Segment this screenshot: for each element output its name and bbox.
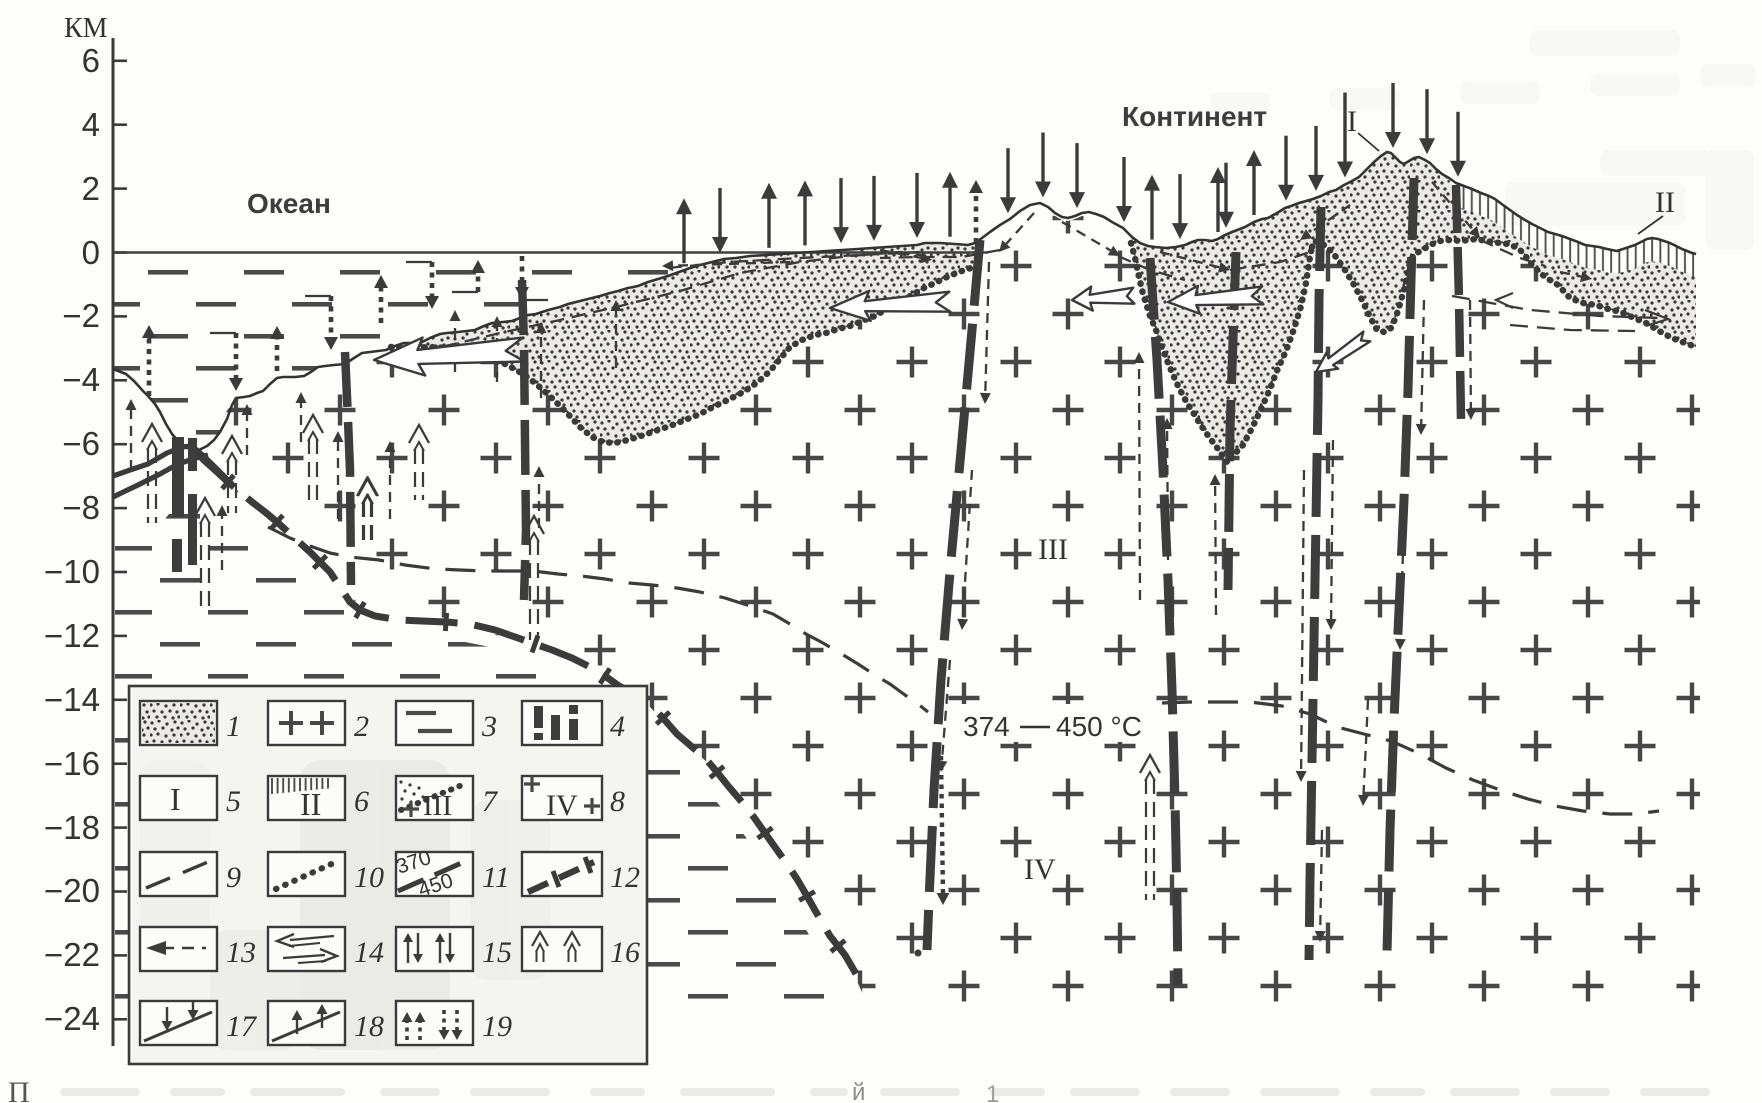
svg-text:8: 8: [610, 785, 625, 818]
svg-text:−8: −8: [62, 489, 100, 526]
svg-text:1: 1: [226, 710, 241, 743]
svg-text:й: й: [852, 1079, 865, 1103]
svg-text:12: 12: [610, 861, 640, 894]
svg-text:Континент: Континент: [1122, 101, 1267, 132]
svg-text:6: 6: [354, 785, 369, 818]
svg-text:5: 5: [226, 785, 241, 818]
svg-text:16: 16: [610, 936, 640, 969]
svg-text:9: 9: [226, 861, 241, 894]
svg-text:15: 15: [482, 936, 512, 969]
svg-text:19: 19: [482, 1010, 512, 1043]
svg-text:14: 14: [354, 936, 384, 969]
svg-text:17: 17: [226, 1010, 258, 1043]
svg-text:374: 374: [963, 711, 1010, 742]
svg-text:10: 10: [354, 861, 384, 894]
svg-text:0: 0: [82, 234, 100, 271]
svg-text:−22: −22: [44, 936, 100, 973]
svg-text:1: 1: [986, 1081, 999, 1103]
svg-text:3: 3: [481, 710, 497, 743]
svg-text:−2: −2: [62, 297, 100, 334]
svg-text:6: 6: [82, 42, 100, 79]
svg-text:−14: −14: [44, 681, 100, 718]
svg-text:18: 18: [354, 1010, 384, 1043]
svg-text:2: 2: [82, 170, 100, 207]
svg-text:11: 11: [482, 861, 510, 894]
svg-text:7: 7: [482, 785, 499, 818]
svg-text:−6: −6: [62, 425, 100, 462]
svg-text:IV: IV: [546, 789, 578, 822]
svg-text:П: П: [8, 1076, 30, 1103]
svg-text:−18: −18: [44, 809, 100, 846]
svg-text:I: I: [170, 781, 181, 817]
svg-text:450 °C: 450 °C: [1056, 711, 1142, 742]
svg-text:−20: −20: [44, 872, 100, 909]
svg-text:−12: −12: [44, 617, 100, 654]
svg-text:−24: −24: [44, 1000, 100, 1037]
svg-text:I: I: [1347, 105, 1357, 138]
svg-text:II: II: [300, 786, 321, 822]
svg-text:4: 4: [610, 710, 625, 743]
svg-text:III: III: [1038, 533, 1068, 566]
svg-text:4: 4: [82, 106, 100, 143]
svg-text:III: III: [423, 790, 452, 822]
svg-text:13: 13: [226, 936, 256, 969]
svg-text:−16: −16: [44, 745, 100, 782]
svg-text:−10: −10: [44, 553, 100, 590]
svg-text:−4: −4: [62, 361, 100, 398]
svg-text:КМ: КМ: [64, 13, 108, 44]
svg-text:II: II: [1655, 186, 1675, 219]
svg-text:2: 2: [354, 710, 369, 743]
svg-text:IV: IV: [1024, 853, 1056, 886]
svg-text:Океан: Океан: [247, 188, 331, 219]
